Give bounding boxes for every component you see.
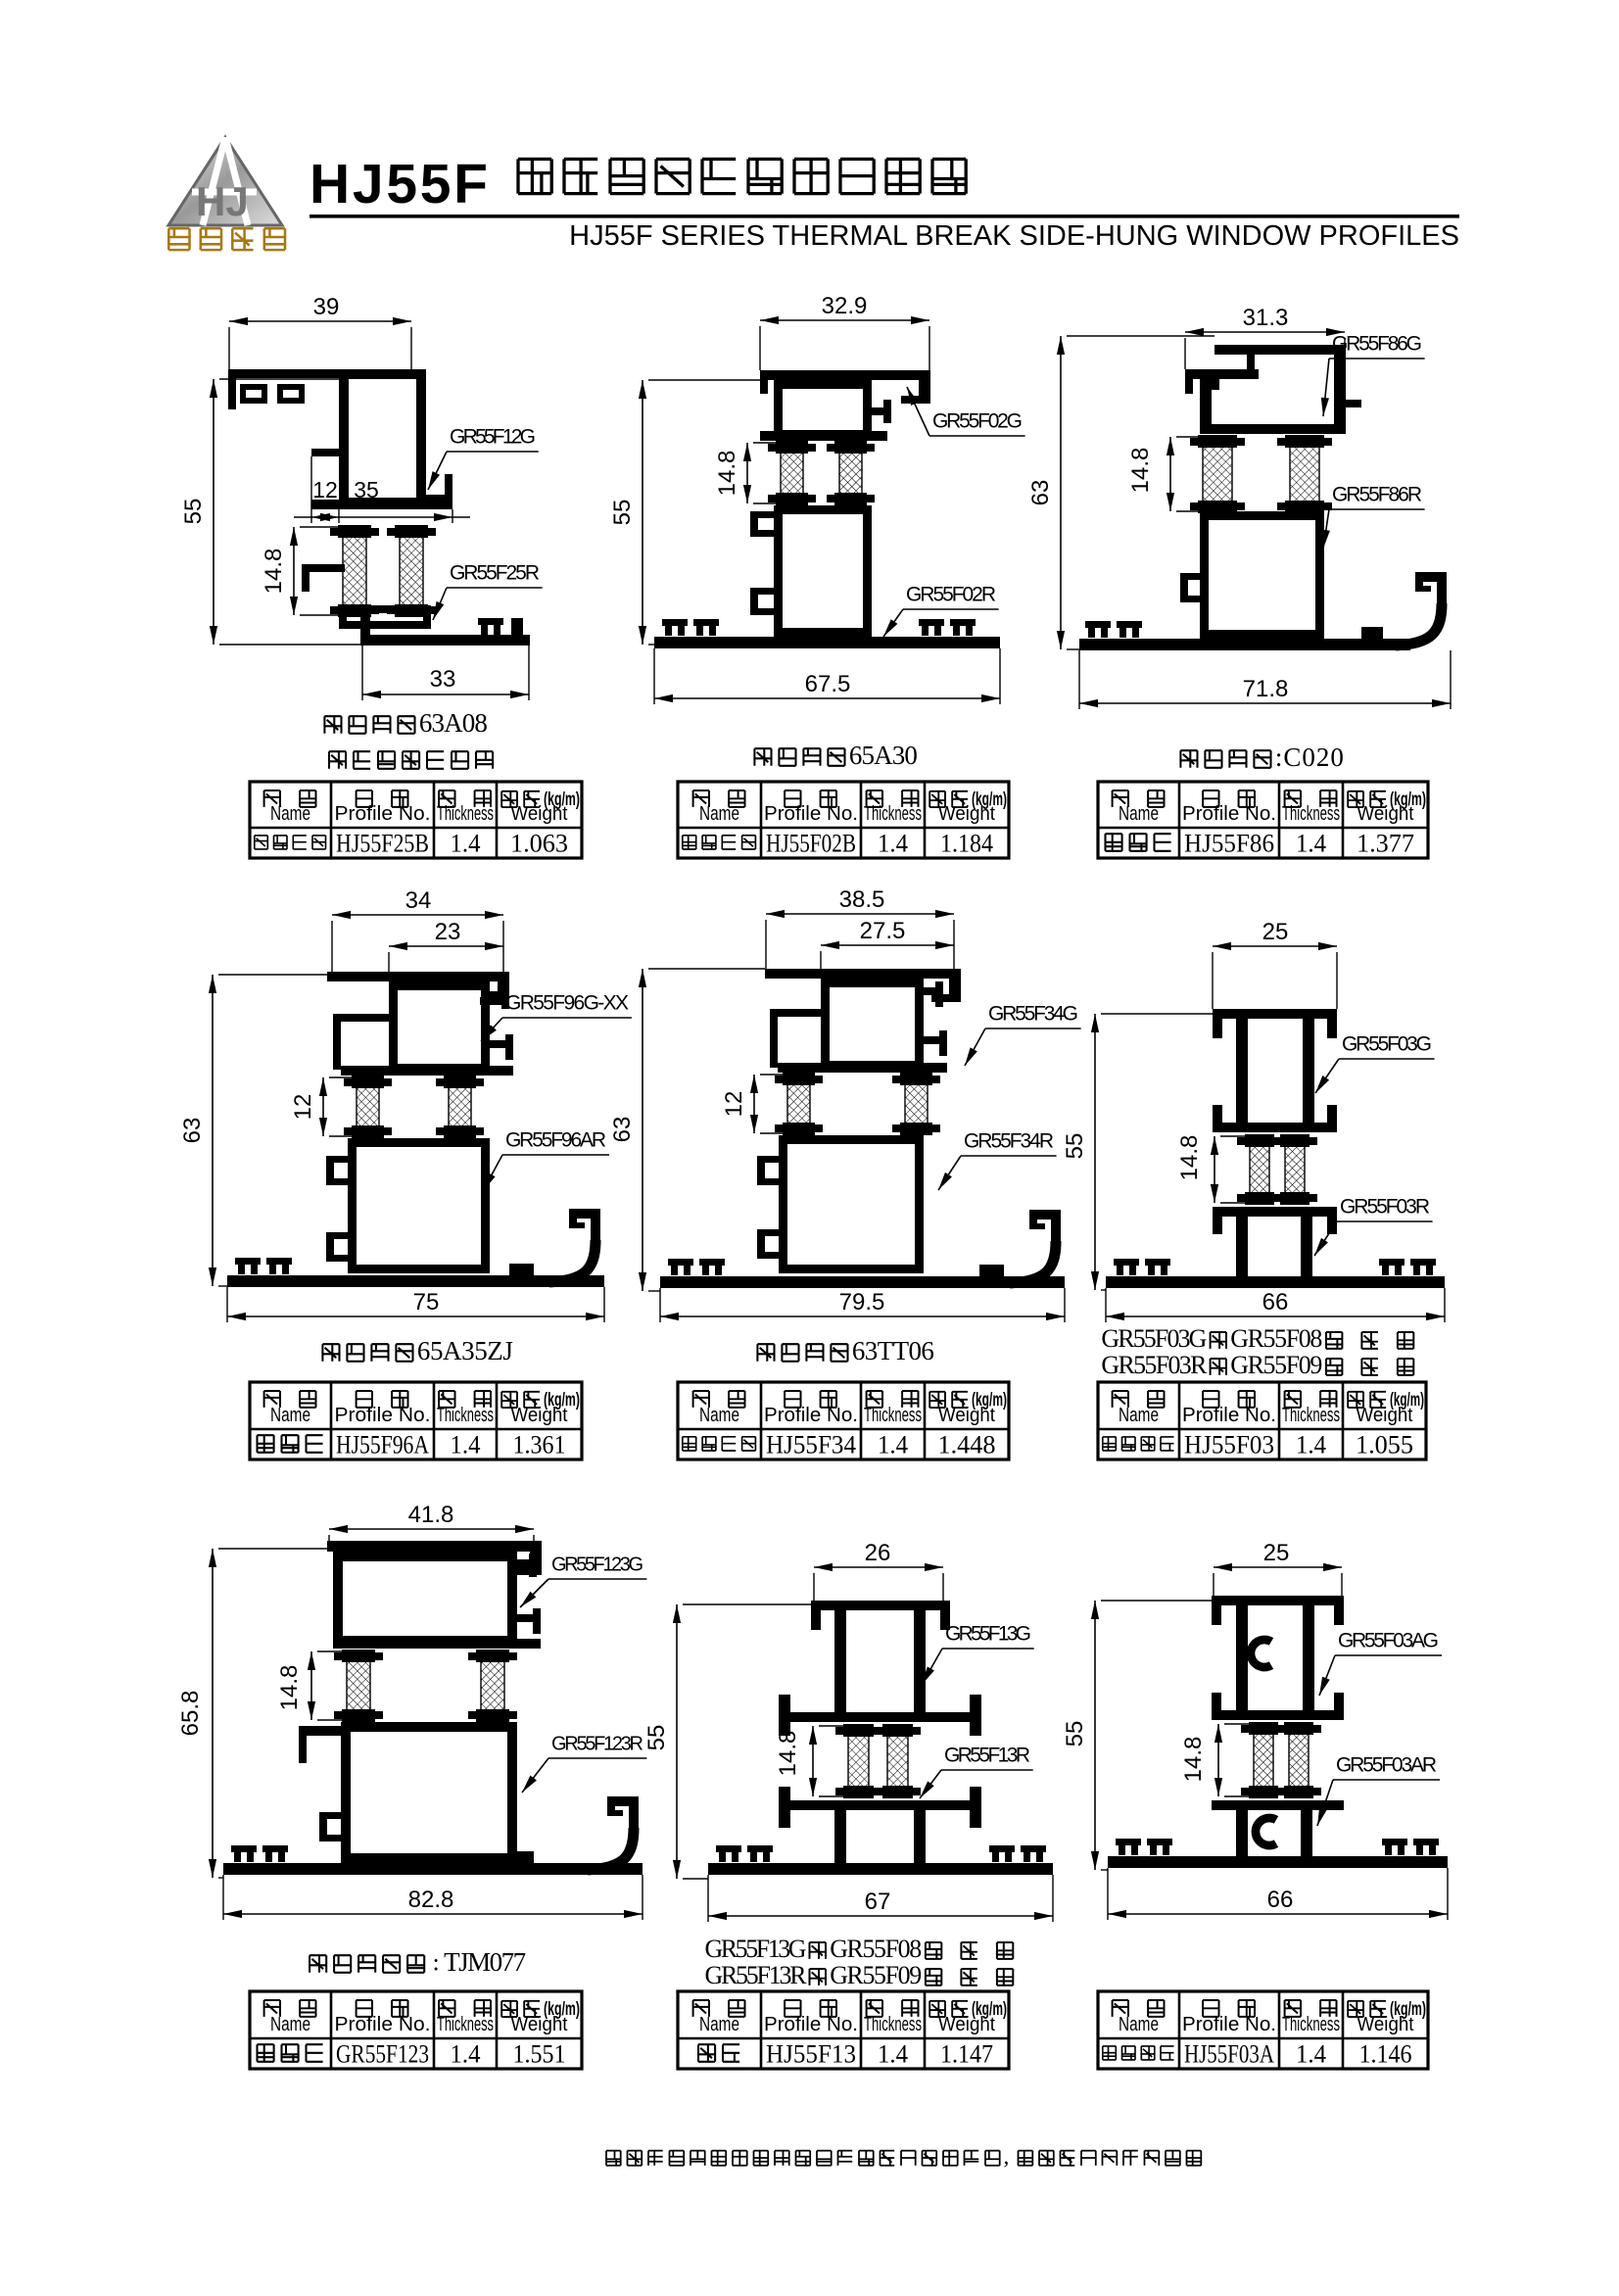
svg-text:Profile No.: Profile No. xyxy=(1182,2014,1276,2035)
svg-text:25: 25 xyxy=(1263,1540,1290,1566)
svg-text:1.4: 1.4 xyxy=(878,2040,908,2069)
svg-text:HJ55F: HJ55F xyxy=(310,153,488,215)
svg-text:Profile No.: Profile No. xyxy=(335,803,431,825)
svg-text:TJM077: TJM077 xyxy=(444,1947,526,1977)
svg-text:Name: Name xyxy=(1119,2014,1159,2035)
svg-text:Weight: Weight xyxy=(1357,2014,1414,2035)
svg-text:1.4: 1.4 xyxy=(1296,830,1326,858)
svg-text:Weight: Weight xyxy=(1357,803,1414,825)
svg-text:35: 35 xyxy=(354,477,379,502)
svg-text:Name: Name xyxy=(699,2014,739,2035)
svg-text:Thickness: Thickness xyxy=(1282,2014,1340,2035)
svg-text:Weight: Weight xyxy=(938,2014,995,2035)
svg-text:HJ55F13: HJ55F13 xyxy=(766,2040,856,2069)
svg-text:HJ55F03: HJ55F03 xyxy=(1184,1431,1274,1459)
svg-text:GR55F02R: GR55F02R xyxy=(906,583,996,605)
svg-text:GR55F03G: GR55F03G xyxy=(1342,1032,1432,1055)
svg-text:Weight: Weight xyxy=(938,1405,995,1426)
svg-text:Name: Name xyxy=(1119,1405,1159,1426)
svg-text:Thickness: Thickness xyxy=(437,2014,494,2035)
svg-text:63A08: 63A08 xyxy=(419,708,488,738)
svg-text:27.5: 27.5 xyxy=(860,918,906,944)
svg-text:12: 12 xyxy=(721,1091,747,1118)
svg-text:GR55F86R: GR55F86R xyxy=(1332,483,1422,505)
svg-text:Profile No.: Profile No. xyxy=(1182,1405,1276,1426)
svg-text:GR55F03G: GR55F03G xyxy=(1101,1324,1207,1353)
svg-text:GR55F123: GR55F123 xyxy=(336,2040,429,2069)
svg-text:Profile No.: Profile No. xyxy=(764,1405,858,1426)
svg-text:Thickness: Thickness xyxy=(1282,803,1340,825)
svg-text:55: 55 xyxy=(1062,1133,1088,1160)
svg-text:1.377: 1.377 xyxy=(1357,830,1414,858)
svg-text:GR55F96AR: GR55F96AR xyxy=(505,1128,606,1151)
svg-text:1.063: 1.063 xyxy=(510,830,568,858)
svg-text:1.551: 1.551 xyxy=(513,2040,566,2069)
svg-text:Thickness: Thickness xyxy=(437,1405,494,1426)
svg-text:1.184: 1.184 xyxy=(940,830,993,858)
svg-text:GR55F123G: GR55F123G xyxy=(551,1555,643,1576)
svg-text:Name: Name xyxy=(270,1405,310,1426)
svg-text:Name: Name xyxy=(699,1405,739,1426)
svg-text:GR55F13G: GR55F13G xyxy=(705,1935,807,1963)
svg-text:HJ55F25B: HJ55F25B xyxy=(336,830,429,858)
svg-text:14.8: 14.8 xyxy=(1127,448,1154,494)
svg-text:GR55F09: GR55F09 xyxy=(1230,1351,1322,1379)
svg-text:Weight: Weight xyxy=(511,1405,568,1426)
svg-text:Profile No.: Profile No. xyxy=(335,2014,431,2035)
svg-text:1.146: 1.146 xyxy=(1359,2040,1412,2069)
svg-text:14.8: 14.8 xyxy=(276,1665,303,1711)
svg-text:63: 63 xyxy=(609,1117,636,1143)
svg-text:71.8: 71.8 xyxy=(1243,676,1289,702)
svg-text:Profile No.: Profile No. xyxy=(1182,803,1276,825)
svg-text:Thickness: Thickness xyxy=(437,803,494,825)
svg-text:Profile No.: Profile No. xyxy=(764,803,858,825)
svg-text:1.055: 1.055 xyxy=(1356,1431,1413,1459)
svg-text:67.5: 67.5 xyxy=(805,671,851,697)
svg-text:Thickness: Thickness xyxy=(864,2014,922,2035)
svg-text:65A30: 65A30 xyxy=(849,741,918,770)
svg-text:GR55F86G: GR55F86G xyxy=(1332,332,1422,355)
svg-text:GR55F12G: GR55F12G xyxy=(450,425,536,448)
svg-text:12: 12 xyxy=(290,1094,316,1121)
svg-text:63TT06: 63TT06 xyxy=(852,1336,934,1365)
svg-text:39: 39 xyxy=(313,294,340,320)
svg-text:63: 63 xyxy=(179,1118,206,1144)
svg-text:26: 26 xyxy=(865,1540,891,1566)
svg-text:Thickness: Thickness xyxy=(864,803,922,825)
svg-text:GR55F34R: GR55F34R xyxy=(964,1129,1054,1152)
svg-text:66: 66 xyxy=(1267,1887,1294,1913)
svg-text:Profile No.: Profile No. xyxy=(764,2014,858,2035)
svg-text:32.9: 32.9 xyxy=(822,293,868,319)
svg-text:33: 33 xyxy=(430,666,456,693)
svg-text:82.8: 82.8 xyxy=(408,1887,454,1913)
svg-text:79.5: 79.5 xyxy=(839,1289,885,1315)
svg-text:Name: Name xyxy=(270,803,310,825)
svg-text:66: 66 xyxy=(1262,1289,1289,1315)
svg-text:25: 25 xyxy=(1262,919,1289,945)
svg-text:GR55F123R: GR55F123R xyxy=(551,1734,643,1755)
svg-text:GR55F08: GR55F08 xyxy=(830,1935,922,1963)
svg-text:Profile No.: Profile No. xyxy=(335,1405,431,1426)
svg-text:1.4: 1.4 xyxy=(451,830,481,858)
svg-text:GR55F13R: GR55F13R xyxy=(944,1744,1030,1766)
svg-text:Name: Name xyxy=(270,2014,310,2035)
svg-text:1.4: 1.4 xyxy=(878,830,908,858)
svg-text:55: 55 xyxy=(643,1725,670,1751)
svg-text:1.4: 1.4 xyxy=(1296,2040,1326,2069)
svg-text:14.8: 14.8 xyxy=(714,451,740,497)
svg-text:12: 12 xyxy=(312,477,338,502)
svg-text:HJ55F96A: HJ55F96A xyxy=(336,1431,429,1459)
svg-text:1.147: 1.147 xyxy=(940,2040,993,2069)
svg-text:Weight: Weight xyxy=(938,803,995,825)
svg-text:Thickness: Thickness xyxy=(1282,1405,1340,1426)
svg-text:41.8: 41.8 xyxy=(408,1502,454,1528)
svg-text:GR55F08: GR55F08 xyxy=(1230,1324,1322,1353)
svg-text:31.3: 31.3 xyxy=(1243,305,1289,331)
svg-text:1.4: 1.4 xyxy=(451,1431,481,1459)
svg-text:HJ55F86: HJ55F86 xyxy=(1184,830,1274,858)
svg-text:55: 55 xyxy=(1062,1721,1088,1747)
svg-text:,: , xyxy=(1004,2144,1010,2170)
svg-text:HJ55F34: HJ55F34 xyxy=(766,1431,856,1459)
svg-text:GR55F03R: GR55F03R xyxy=(1340,1195,1430,1218)
svg-text:GR55F09: GR55F09 xyxy=(830,1961,922,1989)
svg-text:GR55F03AG: GR55F03AG xyxy=(1338,1629,1439,1651)
svg-text:Thickness: Thickness xyxy=(864,1405,922,1426)
svg-text:55: 55 xyxy=(609,500,636,526)
svg-text:55: 55 xyxy=(180,499,207,525)
svg-text:Name: Name xyxy=(1119,803,1159,825)
svg-text:HJ55F SERIES THERMAL BREAK SID: HJ55F SERIES THERMAL BREAK SIDE-HUNG WIN… xyxy=(569,220,1459,252)
svg-text:GR55F13G: GR55F13G xyxy=(945,1622,1031,1645)
svg-text:63: 63 xyxy=(1027,480,1054,506)
svg-text:GR55F02G: GR55F02G xyxy=(932,409,1023,432)
svg-text:1.448: 1.448 xyxy=(938,1431,996,1459)
svg-text:1.361: 1.361 xyxy=(513,1431,566,1459)
svg-text:GR55F03AR: GR55F03AR xyxy=(1336,1753,1437,1776)
svg-text:14.8: 14.8 xyxy=(261,549,287,595)
svg-text:65A35ZJ: 65A35ZJ xyxy=(417,1336,513,1365)
svg-text:14.8: 14.8 xyxy=(775,1731,801,1777)
svg-text:HJ55F03A: HJ55F03A xyxy=(1184,2040,1274,2069)
svg-text:GR55F34G: GR55F34G xyxy=(988,1002,1078,1025)
svg-text:GR55F03R: GR55F03R xyxy=(1101,1351,1208,1379)
svg-text:GR55F96G-XX: GR55F96G-XX xyxy=(505,991,629,1014)
svg-text:GR55F13R: GR55F13R xyxy=(705,1961,808,1989)
svg-text:75: 75 xyxy=(413,1289,440,1315)
svg-text:1.4: 1.4 xyxy=(878,1431,908,1459)
svg-text:GR55F25R: GR55F25R xyxy=(450,561,540,584)
svg-text:23: 23 xyxy=(435,919,461,945)
svg-text:Name: Name xyxy=(699,803,739,825)
svg-text:14.8: 14.8 xyxy=(1180,1737,1207,1783)
svg-text:1.4: 1.4 xyxy=(451,2040,481,2069)
svg-text:HJ55F02B: HJ55F02B xyxy=(766,830,856,858)
svg-text:34: 34 xyxy=(405,887,432,914)
svg-text::C020: :C020 xyxy=(1275,742,1344,772)
svg-text:HJ: HJ xyxy=(196,178,249,224)
svg-text:14.8: 14.8 xyxy=(1176,1135,1203,1181)
svg-text:65.8: 65.8 xyxy=(177,1691,204,1737)
svg-text:Weight: Weight xyxy=(511,803,568,825)
svg-text:38.5: 38.5 xyxy=(839,886,885,913)
svg-text:67: 67 xyxy=(865,1889,891,1915)
svg-text:Weight: Weight xyxy=(511,2014,568,2035)
svg-text:Weight: Weight xyxy=(1357,1405,1413,1426)
svg-text:1.4: 1.4 xyxy=(1296,1431,1326,1459)
